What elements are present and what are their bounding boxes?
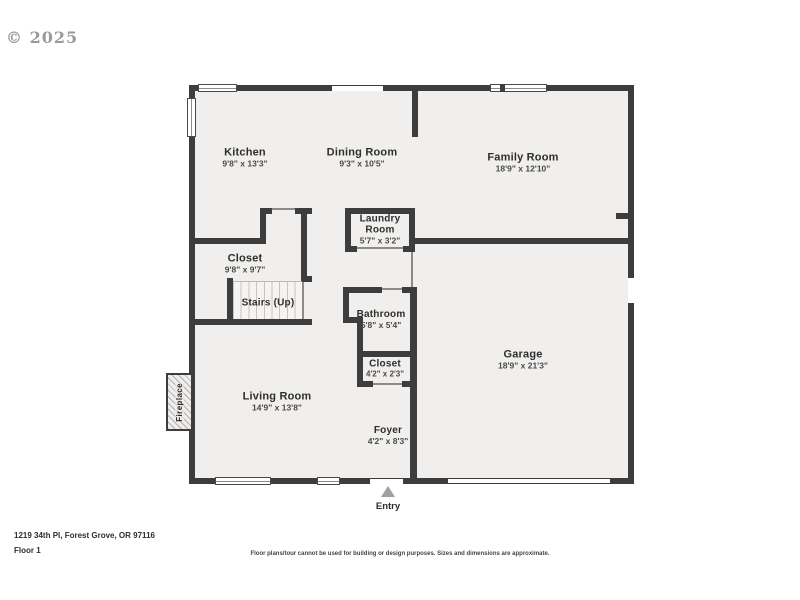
door-opening [357, 247, 403, 249]
door-opening [382, 288, 402, 290]
window-mullion [500, 84, 505, 92]
room-dims: 4'2" x 2'3" [366, 371, 404, 380]
door-opening [373, 383, 402, 385]
entry-arrow-icon [381, 486, 395, 497]
room-name: Family Room [487, 152, 558, 164]
wall [357, 381, 373, 387]
room-label-closet-upper: Closet 9'8" x 9'7" [225, 253, 265, 276]
room-label-family-room: Family Room 18'9" x 12'10" [487, 152, 558, 175]
room-name: Dining Room [327, 147, 398, 159]
room-dims: 18'9" x 21'3" [498, 362, 548, 372]
copyright-watermark: © 2025 [6, 28, 78, 47]
floorplan-page: © 2025 [0, 0, 800, 600]
window-symbol [215, 477, 271, 485]
entry-label: Entry [376, 501, 400, 512]
wall [357, 351, 417, 357]
address-text: 1219 34th Pl, Forest Grove, OR 97116 [14, 531, 155, 540]
wall-thin [411, 252, 413, 287]
room-dims: 14'9" x 13'8" [243, 404, 312, 414]
room-name: Closet [366, 358, 404, 369]
room-label-stairs: Stairs (Up) [242, 297, 295, 308]
room-name: Living Room [243, 391, 312, 403]
room-dims: 18'9" x 12'10" [487, 165, 558, 175]
room-name: Closet [225, 253, 265, 265]
wall [403, 246, 415, 252]
wall [412, 91, 418, 137]
window-symbol [187, 98, 196, 137]
room-label-kitchen: Kitchen 9'8" x 13'3" [222, 147, 267, 170]
room-name: Laundry Room [350, 214, 410, 236]
room-name: Foyer [368, 425, 408, 436]
room-dims: 9'3" x 10'5" [327, 160, 398, 170]
room-dims: 5'7" x 3'2" [350, 237, 410, 247]
wall [402, 381, 417, 387]
room-label-bathroom: Bathroom 5'8" x 5'4" [357, 309, 406, 331]
room-name: Garage [498, 349, 548, 361]
room-name: Bathroom [357, 309, 406, 320]
door-opening [628, 278, 634, 303]
garage-door-symbol [448, 478, 610, 484]
room-label-laundry-room: Laundry Room 5'7" x 3'2" [350, 214, 410, 247]
wall [195, 238, 266, 244]
door-opening [272, 208, 295, 210]
fireplace-symbol: Fireplace [166, 373, 193, 431]
wall [301, 208, 307, 282]
wall [616, 213, 634, 219]
window-symbol [198, 84, 237, 92]
fireplace-label: Fireplace [175, 383, 184, 422]
wall [189, 319, 312, 325]
room-label-garage: Garage 18'9" x 21'3" [498, 349, 548, 372]
wall [402, 287, 417, 293]
wall [410, 238, 634, 244]
room-name: Kitchen [222, 147, 267, 159]
room-dims: 5'8" x 5'4" [357, 321, 406, 331]
room-dims: 4'2" x 8'3" [368, 437, 408, 447]
room-name: Stairs (Up) [242, 297, 295, 308]
wall-opening [332, 85, 383, 91]
room-label-dining-room: Dining Room 9'3" x 10'5" [327, 147, 398, 170]
room-dims: 9'8" x 9'7" [225, 266, 265, 276]
wall [260, 208, 272, 214]
window-symbol [490, 84, 547, 92]
entry-door-opening [370, 478, 403, 484]
room-label-living-room: Living Room 14'9" x 13'8" [243, 391, 312, 414]
disclaimer-text: Floor plans/tour cannot be used for buil… [0, 551, 800, 557]
stairs-edge-line [302, 282, 304, 319]
room-dims: 9'8" x 13'3" [222, 160, 267, 170]
window-symbol [317, 477, 340, 485]
room-label-foyer: Foyer 4'2" x 8'3" [368, 425, 408, 447]
wall [345, 246, 357, 252]
room-label-closet-small: Closet 4'2" x 2'3" [366, 358, 404, 379]
